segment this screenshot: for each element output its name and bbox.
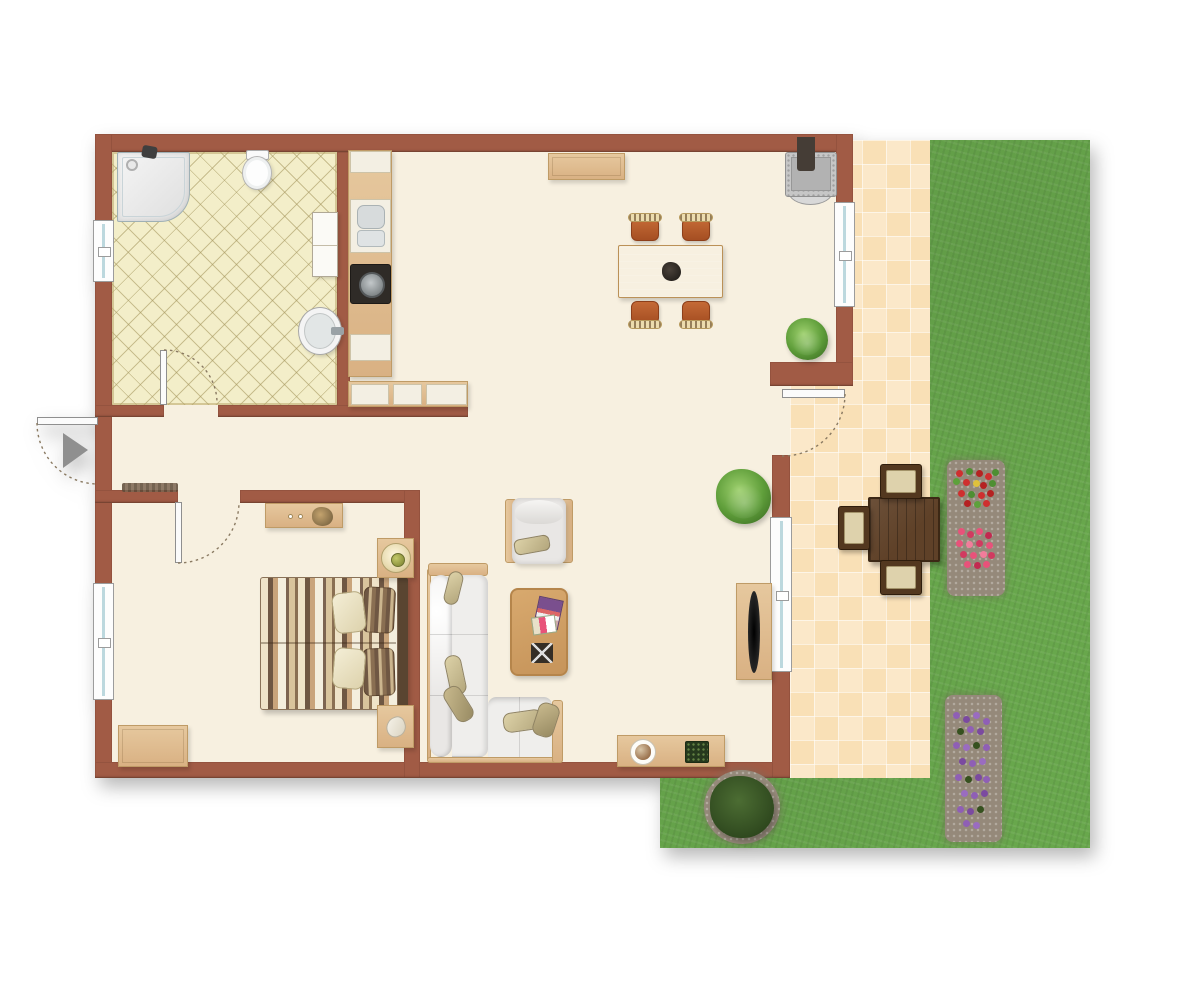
bedroom-door-leaf-icon (175, 502, 182, 563)
kitchen-sink-unit (350, 199, 391, 253)
cream-pillow-icon (331, 590, 368, 635)
shower-head-icon (141, 145, 158, 159)
outdoor-table (868, 497, 940, 562)
dining-sideboard (548, 153, 625, 180)
bathroom-sink-icon (298, 307, 342, 355)
dining-chair (679, 213, 713, 246)
shower-icon (117, 152, 190, 222)
chimney-icon (797, 137, 815, 171)
pet-bowl-icon (630, 739, 656, 765)
flower-bed-mulch (947, 460, 1005, 596)
double-bed (260, 577, 407, 710)
tv-icon (748, 591, 760, 673)
red-flowers-icon (956, 470, 963, 477)
wall-bathroom-bottom-left (95, 405, 164, 417)
bedroom-bench (118, 725, 188, 767)
potted-plant-icon (786, 318, 828, 360)
kitchen-cabinet (350, 151, 391, 173)
stove-icon (350, 264, 391, 304)
bathroom-cabinet-icon (312, 212, 338, 277)
garden-bush-icon (710, 776, 774, 838)
low-sideboard (617, 735, 725, 767)
shell-decor-icon (383, 714, 409, 740)
living-room-upper-window-icon (834, 202, 855, 307)
bathroom-door-leaf-icon (160, 350, 167, 405)
shower-drain-icon (126, 159, 138, 171)
outdoor-chair (838, 506, 870, 550)
bedroom-dresser (265, 503, 343, 528)
dining-chair (628, 213, 662, 246)
entrance-door-leaf-icon (37, 417, 98, 425)
table-lamp-icon (381, 543, 411, 573)
chair-backrest (679, 213, 713, 222)
pink-flowers-icon (958, 528, 965, 535)
chair-cushion (886, 566, 916, 589)
tv-stand (736, 583, 772, 680)
wall-top (95, 134, 853, 152)
bathroom-window-icon (93, 220, 114, 282)
doormat (122, 483, 178, 492)
nightstand (377, 705, 414, 748)
wall-bedroom-top-right (240, 490, 417, 503)
outdoor-chair (880, 464, 922, 499)
chair-cushion (844, 512, 864, 544)
kitchen-sink-basin-icon (357, 205, 385, 229)
kitchen-cabinet (393, 384, 422, 405)
sofa-frame (427, 757, 563, 763)
basket-icon (312, 507, 333, 526)
plant-box-icon (685, 741, 709, 763)
chair-backrest (679, 320, 713, 329)
purple-flowers-icon (953, 712, 960, 719)
l-shaped-sofa (427, 563, 563, 763)
kitchen-cabinet (350, 334, 391, 361)
entrance-door-arc (37, 423, 98, 484)
kitchen-cabinet (426, 384, 467, 405)
knob-icon (288, 514, 293, 519)
nightstand (377, 538, 414, 578)
kitchen-counter-bottom (348, 381, 468, 407)
stove-burner-icon (359, 272, 385, 298)
chair-backrest (628, 213, 662, 222)
striped-pillow-icon (362, 647, 396, 696)
kitchen-cabinet (351, 384, 389, 405)
patio-door-leaf-icon (782, 389, 845, 398)
wall-right-jog (770, 362, 853, 386)
kitchen-counter-strip (348, 150, 392, 377)
armchair (505, 497, 573, 567)
kitchen-sink-drainer-icon (357, 230, 385, 247)
entrance-arrow-icon (63, 433, 88, 468)
chair-cushion (886, 470, 916, 493)
bedroom-window-icon (93, 583, 114, 700)
dining-chair (628, 296, 662, 329)
faucet-icon (331, 327, 344, 335)
outdoor-chair (880, 560, 922, 595)
apartment-scene (0, 0, 1200, 981)
dining-chair (679, 296, 713, 329)
cream-pillow-icon (331, 647, 366, 691)
knob-icon (298, 514, 303, 519)
table-centerpiece-icon (662, 262, 681, 281)
floor-plan-canvas (0, 0, 1200, 981)
chair-backrest (628, 320, 662, 329)
striped-pillow-icon (362, 586, 396, 634)
toilet-icon (242, 156, 272, 190)
living-room-lower-window-icon (770, 517, 792, 672)
headboard (398, 578, 408, 711)
potted-plant-icon (716, 469, 771, 524)
